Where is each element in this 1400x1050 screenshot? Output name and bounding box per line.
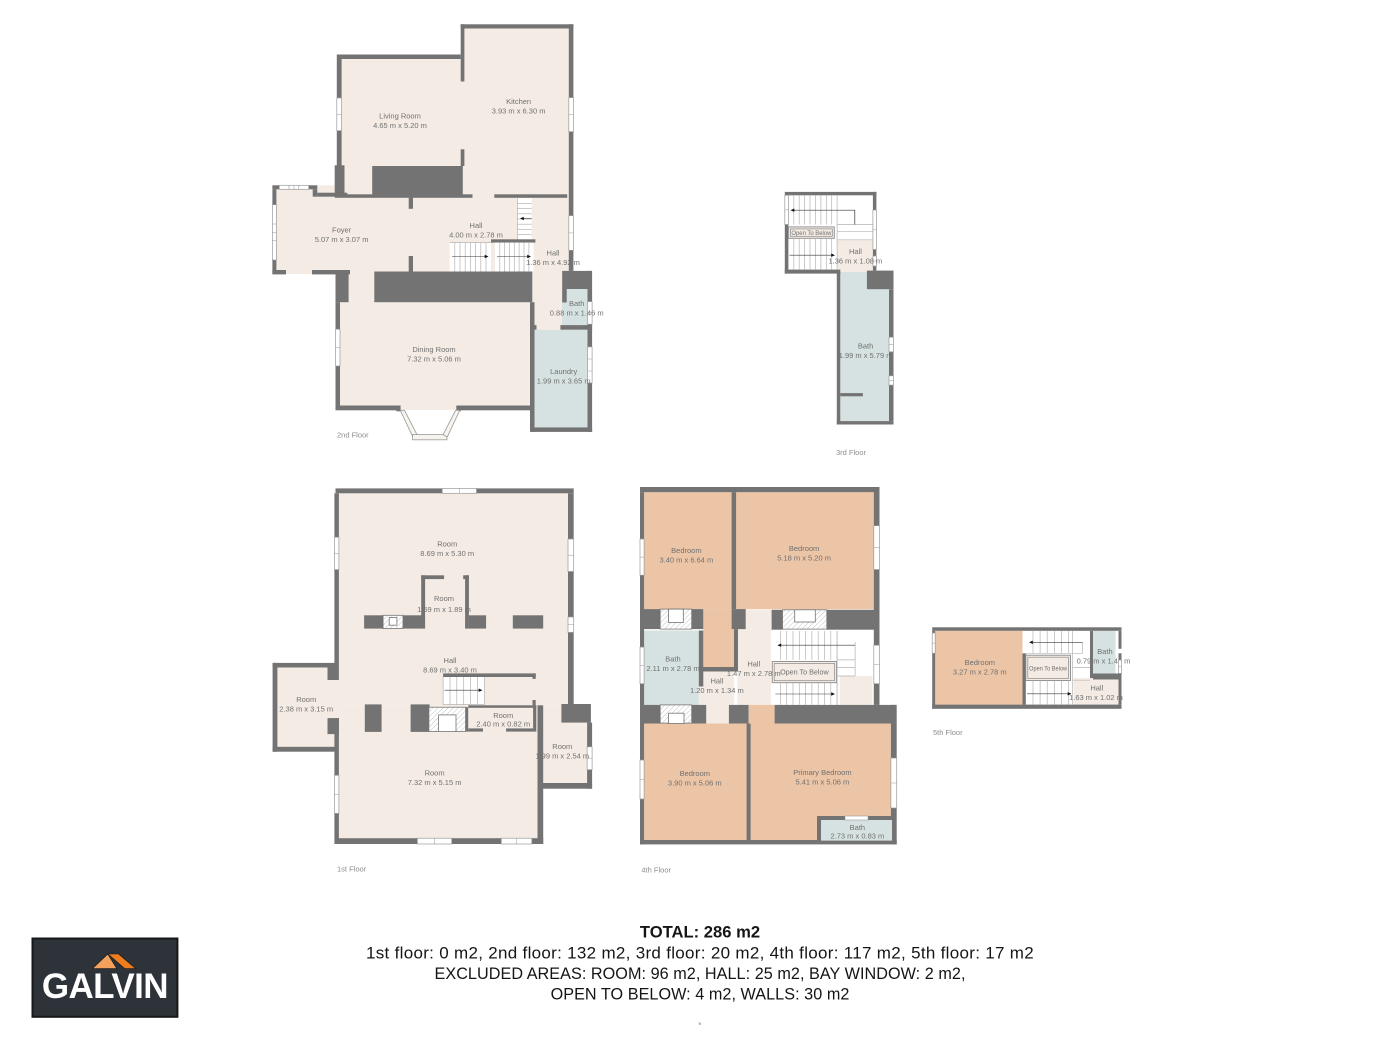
svg-text:7.32 m x 5.15 m: 7.32 m x 5.15 m	[408, 778, 462, 787]
svg-text:1.99 m x 2.54 m: 1.99 m x 2.54 m	[535, 752, 589, 761]
svg-text:2nd Floor: 2nd Floor	[337, 431, 369, 440]
svg-text:2.38 m x 3.15 m: 2.38 m x 3.15 m	[279, 705, 333, 714]
svg-text:Room: Room	[437, 540, 457, 549]
svg-text:5th Floor: 5th Floor	[933, 728, 963, 737]
svg-text:Bath: Bath	[850, 823, 865, 832]
svg-text:Bath: Bath	[569, 299, 584, 308]
svg-text:Open To Below: Open To Below	[780, 668, 829, 677]
svg-text:Laundry: Laundry	[550, 367, 577, 376]
svg-text:GALVIN: GALVIN	[42, 967, 168, 1006]
svg-text:Bedroom: Bedroom	[680, 769, 710, 778]
svg-text:1.20 m x 1.34 m: 1.20 m x 1.34 m	[690, 686, 744, 695]
svg-text:Room: Room	[552, 742, 572, 751]
svg-text:Dining Room: Dining Room	[412, 345, 455, 354]
svg-text:1.47 m x 2.78 m: 1.47 m x 2.78 m	[727, 669, 781, 678]
svg-text:8.69 m x 3.40 m: 8.69 m x 3.40 m	[423, 665, 477, 674]
svg-text:1.99 m x 3.65 m: 1.99 m x 3.65 m	[537, 377, 591, 386]
svg-text:Hall: Hall	[547, 249, 560, 258]
svg-text:Open To Below: Open To Below	[1029, 666, 1067, 673]
svg-text:1st floor: 0 m2, 2nd floor: 13: 1st floor: 0 m2, 2nd floor: 132 m2, 3rd …	[366, 943, 1034, 962]
svg-text:1.63 m x 1.02 m: 1.63 m x 1.02 m	[1069, 693, 1123, 702]
svg-text:3.27 m x 2.78 m: 3.27 m x 2.78 m	[953, 668, 1007, 677]
svg-text:4th Floor: 4th Floor	[641, 865, 671, 874]
svg-text:Bath: Bath	[858, 342, 873, 351]
svg-text:TOTAL: 286 m2: TOTAL: 286 m2	[640, 922, 760, 941]
svg-text:Bath: Bath	[1097, 647, 1112, 656]
svg-text:1.36 m x 1.08 m: 1.36 m x 1.08 m	[829, 257, 883, 266]
svg-text:2.73 m x 0.83 m: 2.73 m x 0.83 m	[831, 832, 885, 841]
svg-text:Hall: Hall	[849, 247, 862, 256]
svg-text:3rd Floor: 3rd Floor	[836, 448, 867, 457]
svg-text:3.40 m x 6.64 m: 3.40 m x 6.64 m	[660, 556, 714, 565]
svg-text:Kitchen: Kitchen	[506, 97, 531, 106]
svg-text:Hall: Hall	[747, 660, 760, 669]
svg-text:3.93 m x 6.30 m: 3.93 m x 6.30 m	[492, 107, 546, 116]
svg-text:8.69 m x 5.30 m: 8.69 m x 5.30 m	[420, 549, 474, 558]
svg-text:Foyer: Foyer	[332, 226, 352, 235]
svg-text:Room: Room	[425, 768, 445, 777]
svg-text:Bedroom: Bedroom	[671, 546, 701, 555]
svg-text:Room: Room	[434, 594, 454, 603]
svg-text:0.79 m x 1.46 m: 0.79 m x 1.46 m	[1077, 656, 1131, 665]
svg-text:EXCLUDED AREAS: ROOM: 96 m2, H: EXCLUDED AREAS: ROOM: 96 m2, HALL: 25 m2…	[435, 965, 966, 983]
svg-text:Hall: Hall	[470, 221, 483, 230]
svg-text:Bedroom: Bedroom	[965, 658, 995, 667]
svg-text:3.90 m x 5.06 m: 3.90 m x 5.06 m	[668, 778, 722, 787]
svg-text:Room: Room	[296, 695, 316, 704]
svg-text:5.41 m x 5.06 m: 5.41 m x 5.06 m	[796, 778, 850, 787]
svg-text:2.11 m x 2.78 m: 2.11 m x 2.78 m	[646, 664, 699, 673]
svg-text:Bedroom: Bedroom	[789, 544, 819, 553]
svg-text:Hall: Hall	[710, 677, 723, 686]
svg-text:4.65 m x 5.20 m: 4.65 m x 5.20 m	[373, 121, 427, 130]
svg-text:5.07 m x 3.07 m: 5.07 m x 3.07 m	[315, 235, 369, 244]
svg-text:Bath: Bath	[665, 655, 680, 664]
svg-text:Primary Bedroom: Primary Bedroom	[793, 768, 851, 777]
svg-text:1st Floor: 1st Floor	[337, 864, 367, 873]
svg-text:0.88 m x 1.46 m: 0.88 m x 1.46 m	[550, 308, 604, 317]
svg-text:Hall: Hall	[1090, 683, 1103, 692]
svg-text:7.32 m x 5.06 m: 7.32 m x 5.06 m	[407, 355, 461, 364]
svg-text:1.59 m x 1.89 m: 1.59 m x 1.89 m	[417, 605, 471, 614]
svg-text:Open To Below: Open To Below	[791, 230, 831, 237]
svg-text:5.18 m x 5.20 m: 5.18 m x 5.20 m	[777, 554, 831, 563]
svg-text:Hall: Hall	[444, 656, 457, 665]
svg-text:1.99 m x 5.79 m: 1.99 m x 5.79 m	[839, 351, 893, 360]
svg-text:OPEN TO BELOW: 4 m2, WALLS: 30: OPEN TO BELOW: 4 m2, WALLS: 30 m2	[551, 985, 850, 1003]
svg-text:2.40 m x 0.82 m: 2.40 m x 0.82 m	[476, 720, 530, 729]
svg-text:Living Room: Living Room	[379, 112, 421, 121]
svg-text:4.00 m x 2.78 m: 4.00 m x 2.78 m	[449, 231, 503, 240]
